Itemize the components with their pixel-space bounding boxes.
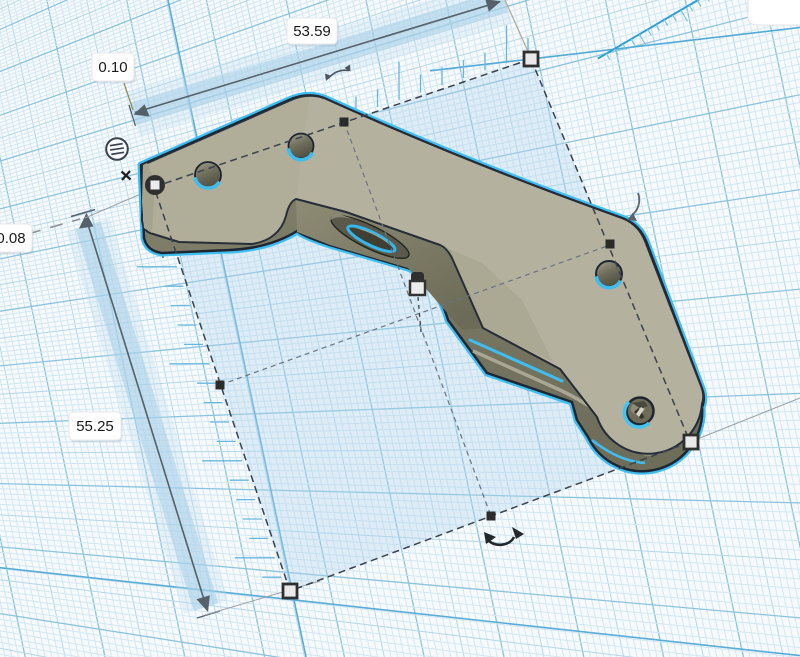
svg-text:53.59: 53.59 xyxy=(293,23,331,40)
svg-text:0.08: 0.08 xyxy=(0,230,26,247)
svg-text:0.10: 0.10 xyxy=(98,59,127,76)
svg-text:55.25: 55.25 xyxy=(76,418,114,435)
